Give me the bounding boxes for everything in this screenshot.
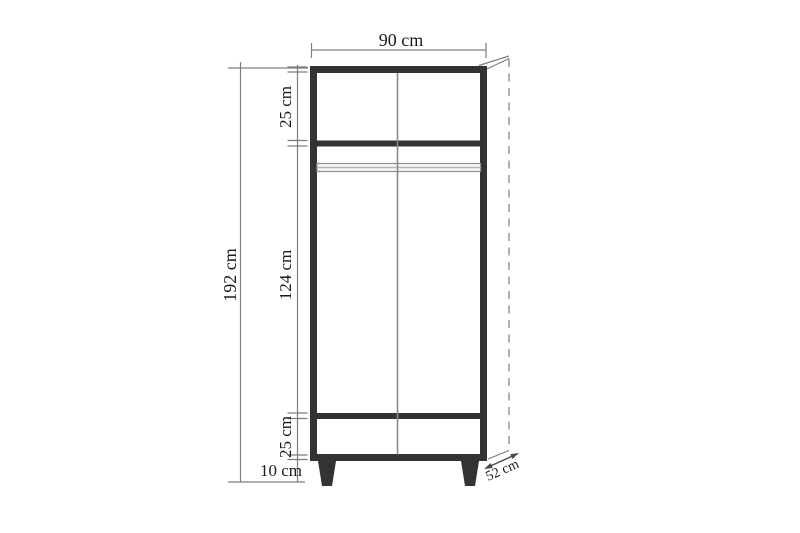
wardrobe-outline [314,70,484,458]
width-label: 90 cm [379,30,424,50]
left-leg [318,461,336,486]
bottom-section-label: 25 cm [276,416,295,458]
leg-height-label: 10 cm [260,461,302,480]
wardrobe-dimension-diagram: 90 cm 192 cm 25 cm 124 cm 25 cm 10 cm 52… [0,0,800,533]
height-label: 192 cm [220,248,240,302]
top-section-label: 25 cm [276,86,295,128]
dimension-width: 90 cm [312,30,487,58]
dimension-depth: 52 cm [484,453,522,485]
diagram-canvas: 90 cm 192 cm 25 cm 124 cm 25 cm 10 cm 52… [0,0,800,533]
right-leg [461,461,479,486]
wardrobe [314,70,484,487]
middle-section-label: 124 cm [276,250,295,301]
depth-bottom-edge-line [488,451,509,460]
